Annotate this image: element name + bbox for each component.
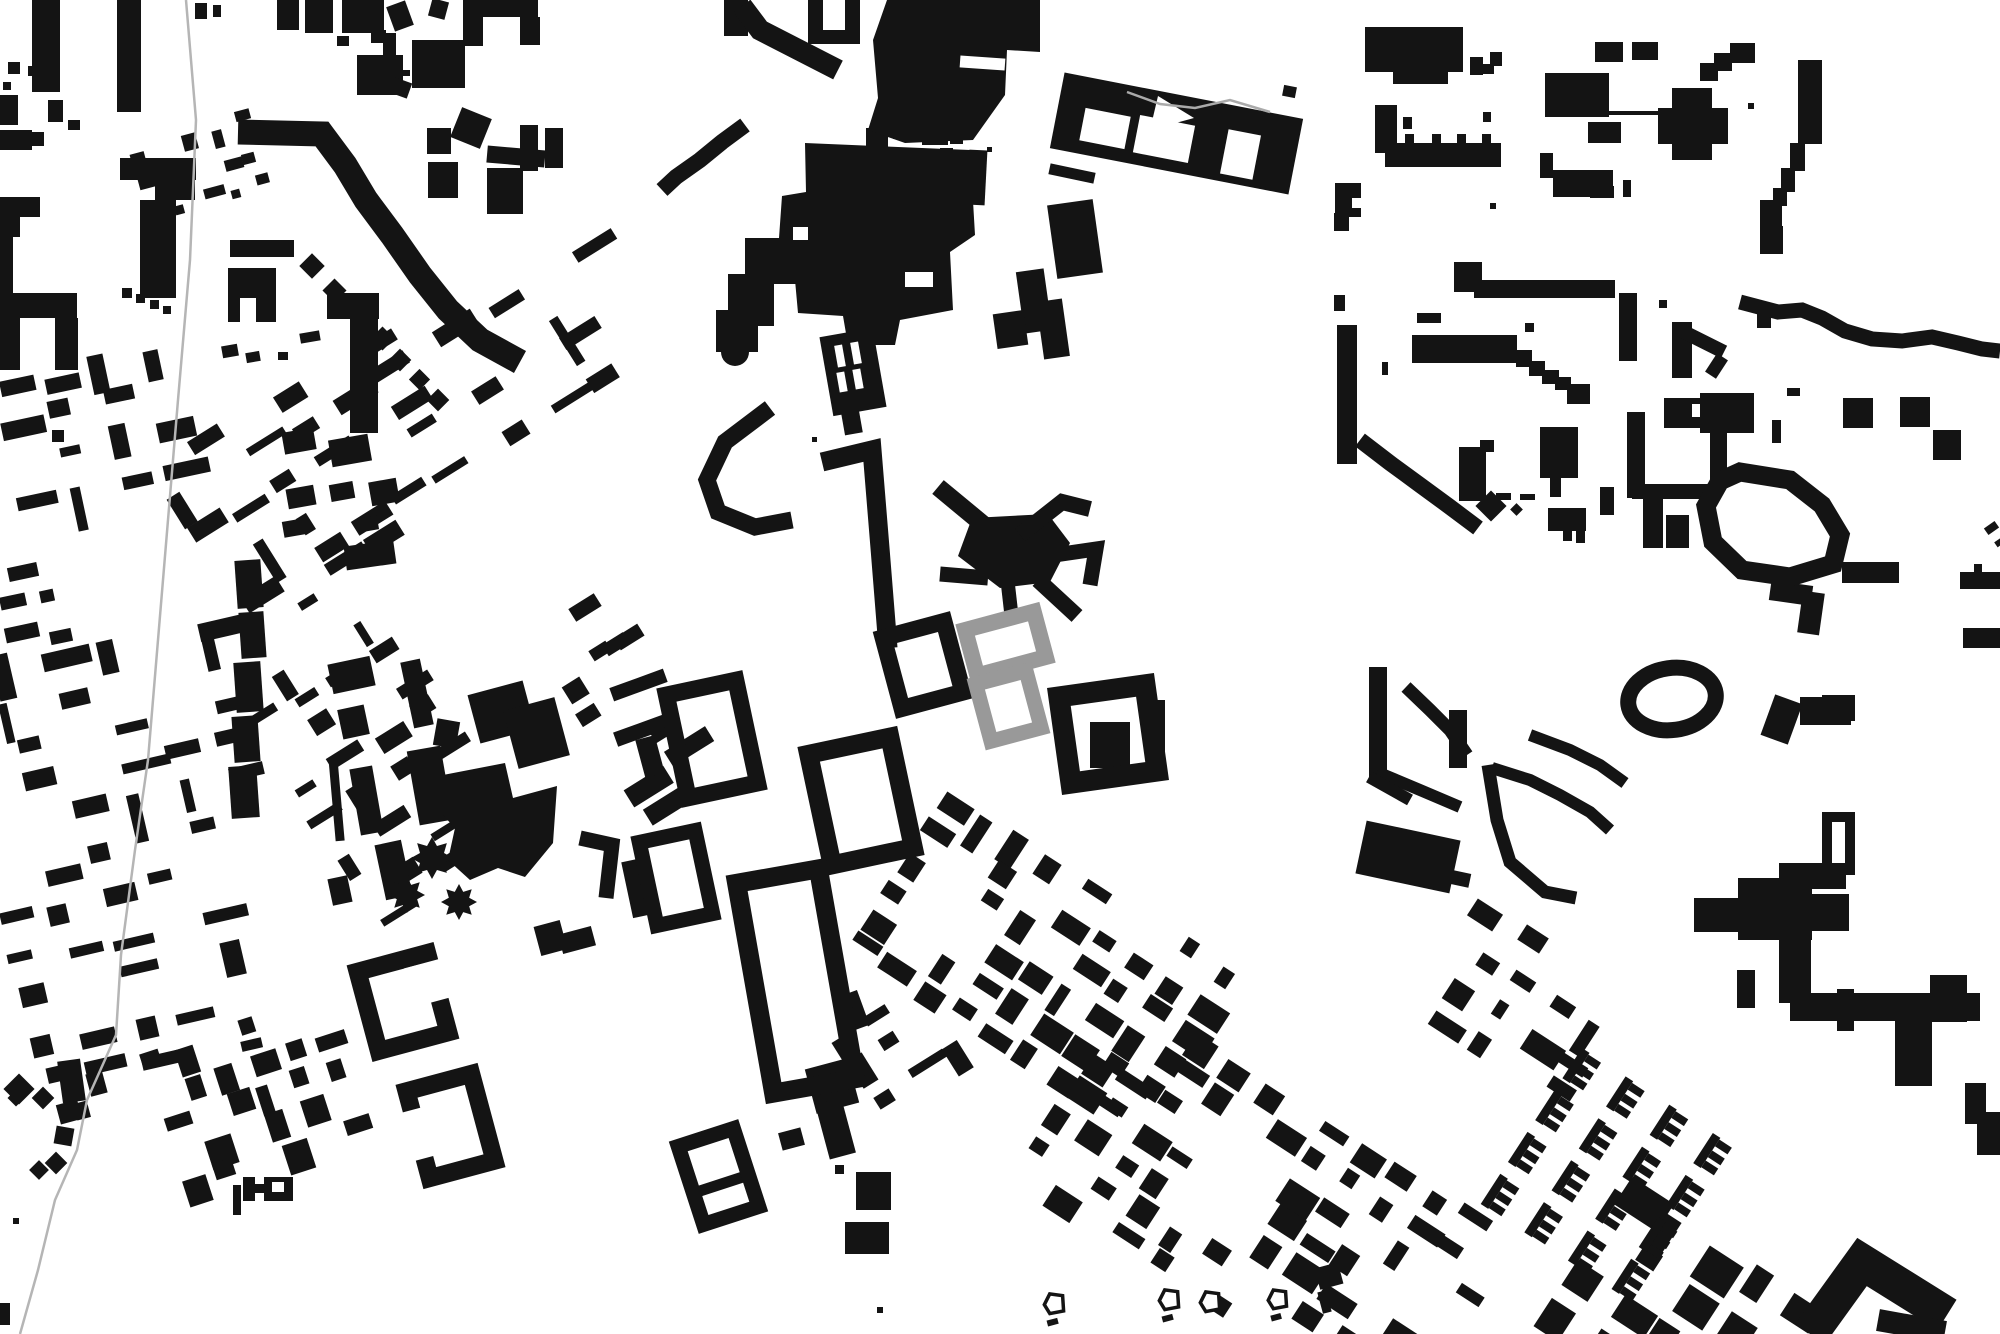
figure-ground-map bbox=[0, 0, 2000, 1334]
site-glyph bbox=[1264, 1287, 1292, 1321]
urban-fabric-cluster bbox=[0, 814, 279, 1099]
site-glyph bbox=[1040, 1291, 1069, 1327]
site-glyph bbox=[1198, 1289, 1222, 1313]
site-plan-svg bbox=[0, 0, 2000, 1334]
highlighted-building bbox=[965, 612, 1046, 742]
urban-fabric-cluster bbox=[1426, 943, 1615, 1112]
comb-rows-cluster bbox=[1481, 1048, 1733, 1302]
urban-fabric-cluster bbox=[146, 318, 493, 640]
site-glyph bbox=[1155, 1287, 1184, 1323]
urban-fabric-cluster bbox=[1004, 986, 1523, 1334]
urban-fabric-cluster bbox=[139, 990, 382, 1208]
site-marker-glyphs bbox=[1040, 1287, 1292, 1327]
